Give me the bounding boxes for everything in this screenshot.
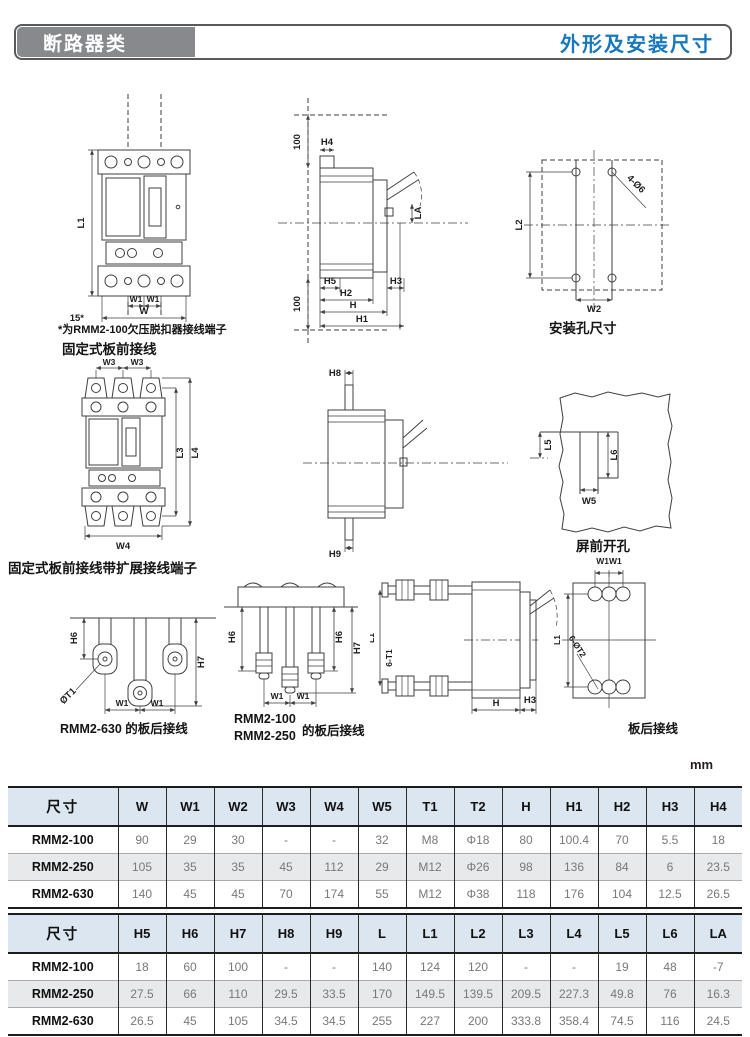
table-row: RMM2-25010535354511229M12Φ269813684623.5: [8, 854, 742, 881]
dimension-value: 16.3: [694, 981, 742, 1008]
dimension-value: 35: [166, 854, 214, 881]
dimension-value: 55: [358, 881, 406, 909]
figure-rear-connection-caption: 板后接线: [628, 718, 678, 737]
column-header: H8: [262, 914, 310, 953]
dimension-value: -: [502, 953, 550, 981]
column-header: LA: [694, 914, 742, 953]
dimension-value: 80: [502, 826, 550, 854]
dim-label-l2: L2: [514, 219, 525, 230]
dimension-value: 60: [166, 953, 214, 981]
dim-label-h: H: [493, 698, 500, 709]
dimension-value: M8: [406, 826, 454, 854]
column-header: W4: [310, 787, 358, 826]
dimension-value: 209.5: [502, 981, 550, 1008]
dimension-value: 100.4: [550, 826, 598, 854]
row-label: RMM2-100: [8, 826, 118, 854]
dimension-value: 26.5: [694, 881, 742, 909]
column-header: H3: [646, 787, 694, 826]
dim-label-l3: L3: [175, 447, 186, 458]
unit-label: mm: [690, 757, 713, 772]
column-header: H1: [550, 787, 598, 826]
table-header-row: 尺寸WW1W2W3W4W5T1T2HH1H2H3H4: [8, 787, 742, 826]
dim-label-w3-left: W3: [103, 358, 116, 367]
dim-label-h3: H3: [390, 276, 402, 287]
column-header: L5: [598, 914, 646, 953]
column-header: H9: [310, 914, 358, 953]
column-header: H5: [118, 914, 166, 953]
dimension-value: 227: [406, 1008, 454, 1036]
table-row: RMM2-100902930--32M8Φ1880100.4705.518: [8, 826, 742, 854]
column-header-size: 尺寸: [8, 914, 118, 953]
dimension-value: 139.5: [454, 981, 502, 1008]
dimension-value: 35: [214, 854, 262, 881]
dimension-value: 105: [214, 1008, 262, 1036]
dimension-value: 30: [214, 826, 262, 854]
dim-label-w1-left: W1: [271, 691, 284, 701]
dim-label-4-holes: 4-Ø6: [624, 173, 647, 196]
dimension-value: 18: [118, 953, 166, 981]
dimension-value: 174: [310, 881, 358, 909]
dimension-table-2: 尺寸H5H6H7H8H9LL1L2L3L4L5L6LARMM2-10018601…: [8, 913, 742, 1036]
column-header: L6: [646, 914, 694, 953]
dim-label-w2: W2: [587, 304, 601, 315]
dimension-value: -: [310, 826, 358, 854]
dim-label-100-top: 100: [292, 134, 303, 150]
page-title: 外形及安装尺寸: [560, 26, 714, 58]
dimension-value: 112: [310, 854, 358, 881]
figure-rear-630: H6 H7 ØT1 W1 W1: [46, 592, 226, 718]
table-row: RMM2-63014045457017455M12Φ3811817610412.…: [8, 881, 742, 909]
dimension-value: -: [550, 953, 598, 981]
column-header: H: [502, 787, 550, 826]
dim-label-phi-t1: ØT1: [58, 685, 79, 706]
dimension-value: 32: [358, 826, 406, 854]
dimension-value: M12: [406, 881, 454, 909]
dim-label-w3-right: W3: [131, 358, 144, 367]
dim-label-h4: H4: [321, 137, 334, 148]
dim-label-w: W: [140, 306, 149, 317]
column-header: T2: [454, 787, 502, 826]
dimension-value: 23.5: [694, 854, 742, 881]
dimension-value: 45: [262, 854, 310, 881]
column-header: H7: [214, 914, 262, 953]
dimension-value: 110: [214, 981, 262, 1008]
dimension-value: 48: [646, 953, 694, 981]
figure-front-view-note: *为RMM2-100欠压脱扣器接线端子: [58, 321, 227, 337]
column-header: W: [118, 787, 166, 826]
dimension-value: 29.5: [262, 981, 310, 1008]
column-header: L1: [406, 914, 454, 953]
dimension-value: 140: [358, 953, 406, 981]
dim-label-w1-right: W1: [297, 691, 310, 701]
dimension-value: 66: [166, 981, 214, 1008]
figure-rear-100-250-caption: 的板后接线: [302, 720, 365, 739]
dimension-value: 255: [358, 1008, 406, 1036]
dimension-value: 84: [598, 854, 646, 881]
dimension-table-1-wrap: 尺寸WW1W2W3W4W5T1T2HH1H2H3H4RMM2-100902930…: [8, 786, 742, 909]
figure-rear-100-250-model2: RMM2-250: [234, 729, 296, 743]
figure-front-view-extended-caption: 固定式板前接线带扩展接线端子: [8, 557, 197, 577]
row-label: RMM2-630: [8, 881, 118, 909]
dimension-value: 34.5: [310, 1008, 358, 1036]
dimension-value: 104: [598, 881, 646, 909]
dimension-value: 118: [502, 881, 550, 909]
dim-label-6-t1: 6-T1: [384, 649, 394, 667]
dim-label-h7: H7: [196, 656, 207, 668]
row-label: RMM2-250: [8, 981, 118, 1008]
row-label: RMM2-250: [8, 854, 118, 881]
figure-front-view-caption: 固定式板前接线: [62, 338, 157, 358]
dim-label-h3: H3: [524, 695, 536, 706]
column-header: W1: [166, 787, 214, 826]
dim-label-h5: H5: [324, 276, 337, 287]
dim-label-w1w1: W1W1: [596, 556, 622, 566]
dim-label-w1-right: W1: [147, 294, 160, 304]
figure-panel-cutout: L5 L6 W5: [530, 386, 690, 534]
page-header: 断路器类 外形及安装尺寸: [14, 24, 732, 60]
dim-label-h8: H8: [329, 368, 341, 379]
dimension-table-1: 尺寸WW1W2W3W4W5T1T2HH1H2H3H4RMM2-100902930…: [8, 786, 742, 909]
dimension-value: 140: [118, 881, 166, 909]
dimension-value: 74.5: [598, 1008, 646, 1036]
dimension-value: 24.5: [694, 1008, 742, 1036]
dimension-value: 227.3: [550, 981, 598, 1008]
figure-rear-100-250-model1: RMM2-100: [234, 712, 296, 726]
dimension-value: 26.5: [118, 1008, 166, 1036]
dim-label-l1: L1: [76, 217, 87, 229]
column-header: H2: [598, 787, 646, 826]
dimension-value: 5.5: [646, 826, 694, 854]
column-header: L3: [502, 914, 550, 953]
dimension-value: 49.8: [598, 981, 646, 1008]
dimension-value: 98: [502, 854, 550, 881]
figure-front-view: L1 W1 W1 W 15*: [48, 92, 263, 324]
dim-label-h9: H9: [329, 549, 341, 558]
dimension-value: 200: [454, 1008, 502, 1036]
column-header: H6: [166, 914, 214, 953]
category-label: 断路器类: [17, 27, 195, 57]
page: 断路器类 外形及安装尺寸 L1 W1 W1 W 15* *为RMM2-100欠压…: [0, 0, 750, 1037]
column-header: W2: [214, 787, 262, 826]
dim-label-l4: L4: [190, 447, 201, 459]
dimension-value: 90: [118, 826, 166, 854]
dimension-value: 18: [694, 826, 742, 854]
dim-label-100-bottom: 100: [292, 296, 303, 312]
dimension-value: 27.5: [118, 981, 166, 1008]
dim-label-h6-left: H6: [227, 631, 238, 643]
figure-side-view: 100 H4 LA H5 H3 H2 H H1 100: [278, 92, 468, 350]
dimension-value: Φ18: [454, 826, 502, 854]
dim-label-h6-right: H6: [334, 631, 345, 643]
figure-rear-630-caption: RMM2-630 的板后接线: [60, 718, 188, 737]
table-row: RMM2-63026.54510534.534.5255227200333.83…: [8, 1008, 742, 1036]
figure-mounting-holes-caption: 安装孔尺寸: [549, 317, 617, 337]
dimension-value: 29: [166, 826, 214, 854]
dimension-value: 358.4: [550, 1008, 598, 1036]
dim-label-w1-right: W1: [151, 698, 164, 708]
dimension-value: 33.5: [310, 981, 358, 1008]
row-label: RMM2-100: [8, 953, 118, 981]
dimension-value: Φ38: [454, 881, 502, 909]
figure-mounting-holes: 4-Ø6 L2 W2: [512, 148, 680, 316]
dimension-value: 34.5: [262, 1008, 310, 1036]
dimension-value: 105: [118, 854, 166, 881]
column-header: L2: [454, 914, 502, 953]
dim-label-l5: L5: [543, 439, 554, 451]
dimension-value: 70: [262, 881, 310, 909]
column-header: L: [358, 914, 406, 953]
column-header: H4: [694, 787, 742, 826]
dimension-table-2-wrap: 尺寸H5H6H7H8H9LL1L2L3L4L5L6LARMM2-10018601…: [8, 913, 742, 1036]
figure-rear-100-250: H6 H6 H7 W1 W1: [216, 575, 366, 713]
dim-label-w4: W4: [116, 541, 131, 552]
dim-label-l1-side: L1: [370, 633, 376, 643]
dim-label-l1-rear: L1: [552, 635, 562, 645]
dimension-value: -: [262, 826, 310, 854]
dim-label-la: LA: [413, 207, 424, 220]
dimension-value: 170: [358, 981, 406, 1008]
table-header-row: 尺寸H5H6H7H8H9LL1L2L3L4L5L6LA: [8, 914, 742, 953]
dimension-value: 45: [166, 881, 214, 909]
column-header: T1: [406, 787, 454, 826]
dim-label-h2: H2: [340, 288, 352, 299]
dimension-value: -7: [694, 953, 742, 981]
dimension-value: 19: [598, 953, 646, 981]
table-row: RMM2-25027.56611029.533.5170149.5139.520…: [8, 981, 742, 1008]
dimension-value: 333.8: [502, 1008, 550, 1036]
column-header-size: 尺寸: [8, 787, 118, 826]
column-header: W3: [262, 787, 310, 826]
dimension-value: 45: [166, 1008, 214, 1036]
dim-label-h1: H1: [356, 314, 369, 325]
dimension-value: 100: [214, 953, 262, 981]
dimension-value: 176: [550, 881, 598, 909]
dimension-value: Φ26: [454, 854, 502, 881]
figure-front-view-extended: W3 W3 L3 L4 W4: [70, 358, 230, 554]
dimension-value: 116: [646, 1008, 694, 1036]
table-row: RMM2-1001860100--140124120--1948-7: [8, 953, 742, 981]
row-label: RMM2-630: [8, 1008, 118, 1036]
dimension-value: -: [310, 953, 358, 981]
dim-label-l6: L6: [609, 449, 620, 460]
dimension-value: -: [262, 953, 310, 981]
dimension-value: 6: [646, 854, 694, 881]
dim-label-h7: H7: [352, 642, 363, 654]
dimension-value: 70: [598, 826, 646, 854]
dim-label-h: H: [350, 300, 357, 311]
dimension-value: 136: [550, 854, 598, 881]
dimension-value: 120: [454, 953, 502, 981]
figure-side-view-2: H8 H9: [303, 358, 508, 558]
figure-rear-connection: L1 6-T1 H H3 W1W1 L1 6-ØT2: [370, 548, 750, 720]
dimension-value: 76: [646, 981, 694, 1008]
dim-label-h6: H6: [69, 632, 80, 644]
dim-label-w1-left: W1: [130, 294, 143, 304]
column-header: W5: [358, 787, 406, 826]
dimension-value: 149.5: [406, 981, 454, 1008]
dimension-value: M12: [406, 854, 454, 881]
dim-label-w5: W5: [582, 496, 597, 507]
dimension-value: 12.5: [646, 881, 694, 909]
dimension-value: 124: [406, 953, 454, 981]
dimension-value: 29: [358, 854, 406, 881]
column-header: L4: [550, 914, 598, 953]
dimension-value: 45: [214, 881, 262, 909]
dim-label-w1-left: W1: [116, 698, 129, 708]
